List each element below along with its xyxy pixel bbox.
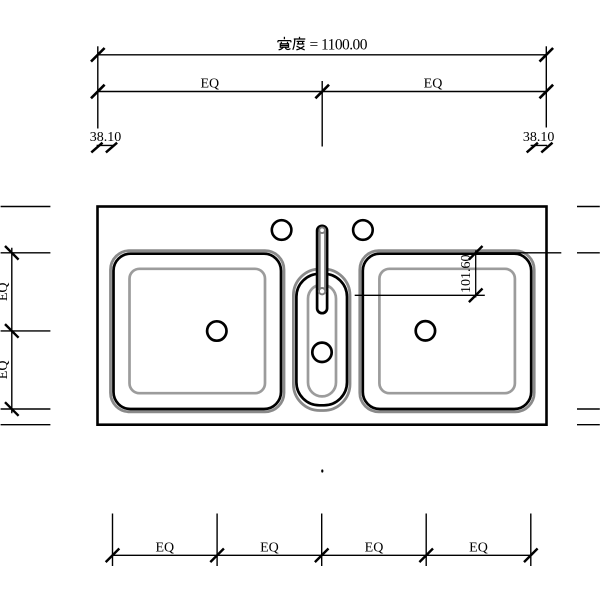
svg-text:EQ: EQ [365,540,384,555]
svg-text:38.10: 38.10 [523,130,555,145]
svg-text:EQ: EQ [0,361,11,380]
svg-text:EQ: EQ [0,282,11,301]
svg-text:EQ: EQ [424,77,443,92]
svg-text:EQ: EQ [155,540,174,555]
svg-text:EQ: EQ [260,540,279,555]
svg-text:= 1100.00: = 1100.00 [310,36,368,53]
svg-text:EQ: EQ [200,77,219,92]
svg-text:101.60: 101.60 [459,255,474,294]
svg-text:EQ: EQ [469,540,488,555]
